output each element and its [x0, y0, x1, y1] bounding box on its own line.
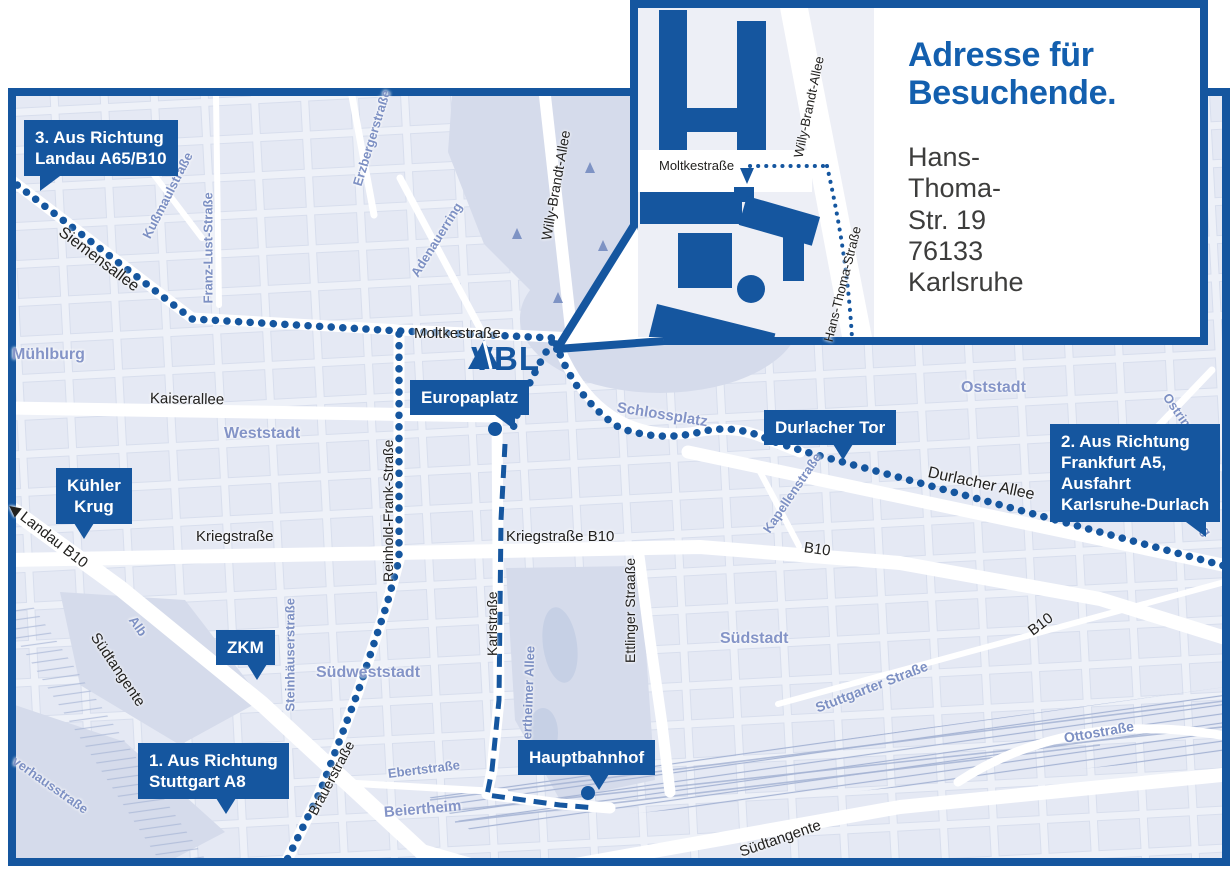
stadtgarten-pond [528, 708, 558, 758]
hauptbahnhof-stop [581, 786, 595, 800]
map-canvas [0, 0, 1230, 874]
vbl-directions-map: VBL SiemensalleeKußmaulstraßeFranz-Lust-… [0, 0, 1230, 874]
address-callout-map [638, 8, 874, 370]
europaplatz-stop [488, 422, 502, 436]
inset-moltkestrasse-road [638, 150, 812, 192]
